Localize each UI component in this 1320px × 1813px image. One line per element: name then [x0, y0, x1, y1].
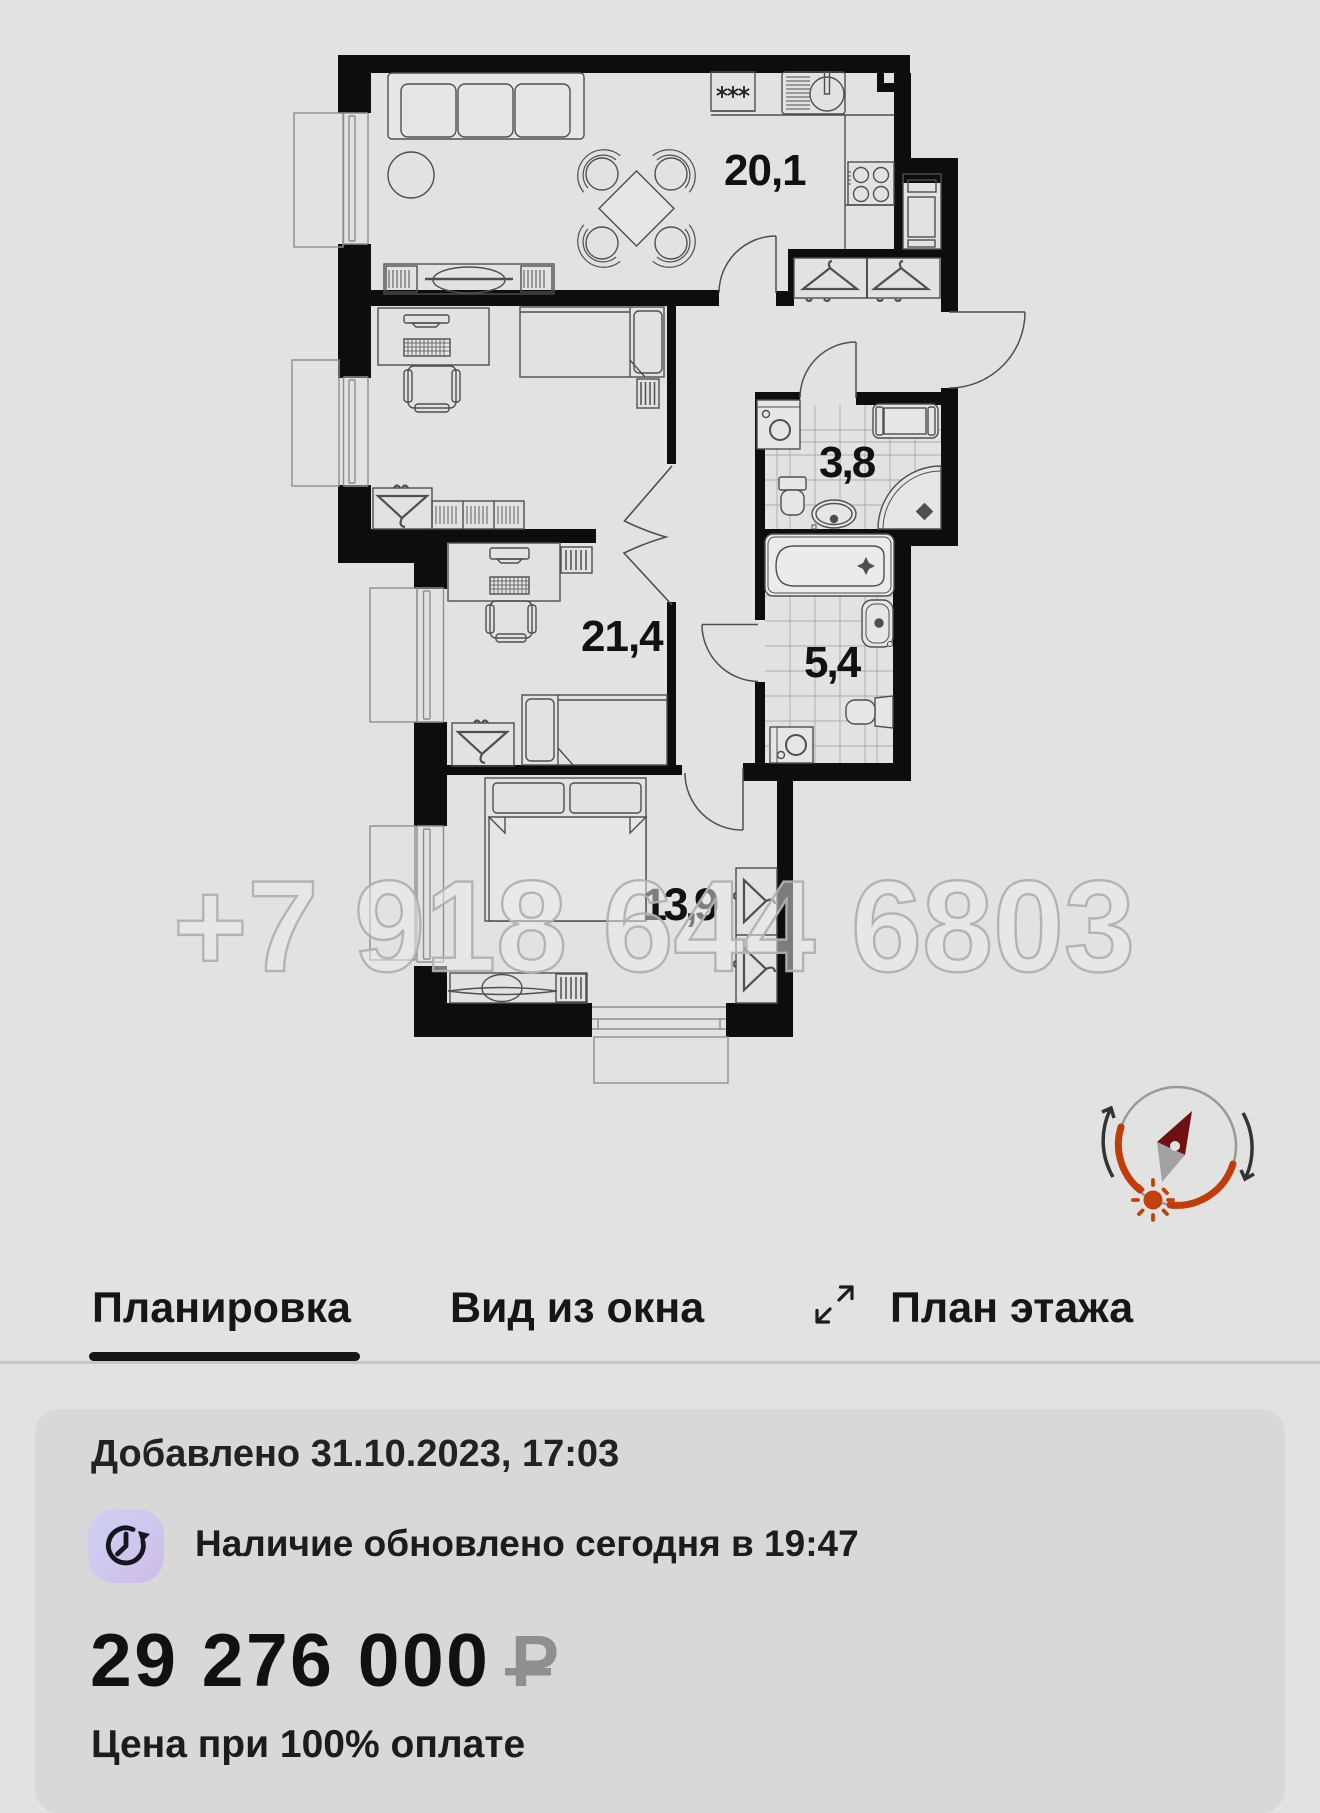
svg-text:21,4: 21,4	[581, 612, 664, 661]
svg-text:Добавлено 31.10.2023, 17:03: Добавлено 31.10.2023, 17:03	[91, 1433, 619, 1475]
svg-text:Вид из окна: Вид из окна	[450, 1284, 705, 1332]
svg-text:5,4: 5,4	[804, 638, 862, 687]
svg-text:3,8: 3,8	[819, 438, 876, 487]
svg-text:+7 918 644 6803: +7 918 644 6803	[173, 853, 1135, 999]
svg-text:29 276 000: 29 276 000	[90, 1618, 490, 1702]
svg-text:Наличие обновлено сегодня в 19: Наличие обновлено сегодня в 19:47	[195, 1523, 859, 1564]
svg-text:Планировка: Планировка	[92, 1284, 352, 1332]
svg-text:Р: Р	[511, 1622, 559, 1702]
svg-text:20,1: 20,1	[724, 146, 806, 195]
svg-text:План этажа: План этажа	[890, 1284, 1134, 1332]
svg-text:Цена при 100% оплате: Цена при 100% оплате	[91, 1723, 525, 1766]
